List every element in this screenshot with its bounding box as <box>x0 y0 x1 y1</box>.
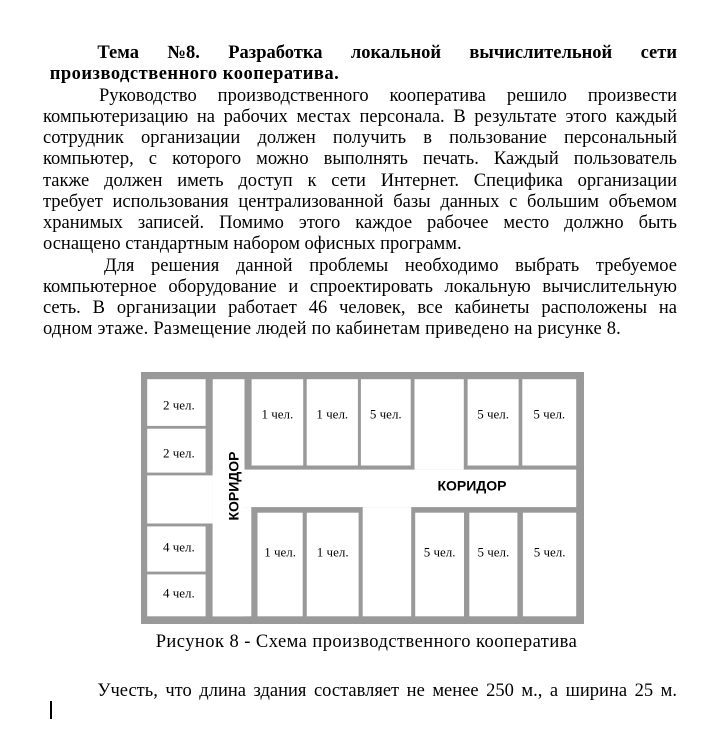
svg-text:КОРИДОР: КОРИДОР <box>437 478 506 494</box>
svg-text:5 чел.: 5 чел. <box>534 545 566 560</box>
svg-text:4 чел.: 4 чел. <box>163 540 195 555</box>
svg-text:5 чел.: 5 чел. <box>533 407 565 422</box>
svg-text:КОРИДОР: КОРИДОР <box>225 451 241 520</box>
svg-text:5 чел.: 5 чел. <box>477 407 509 422</box>
svg-text:1 чел.: 1 чел. <box>316 407 348 422</box>
svg-text:2 чел.: 2 чел. <box>163 398 195 413</box>
svg-text:2 чел.: 2 чел. <box>163 446 195 461</box>
svg-text:1 чел.: 1 чел. <box>262 407 294 422</box>
svg-text:5 чел.: 5 чел. <box>478 545 510 560</box>
svg-text:1 чел.: 1 чел. <box>317 545 349 560</box>
svg-text:5 чел.: 5 чел. <box>370 407 402 422</box>
svg-text:1 чел.: 1 чел. <box>264 545 296 560</box>
svg-text:4 чел.: 4 чел. <box>163 586 195 601</box>
svg-text:5 чел.: 5 чел. <box>424 545 456 560</box>
